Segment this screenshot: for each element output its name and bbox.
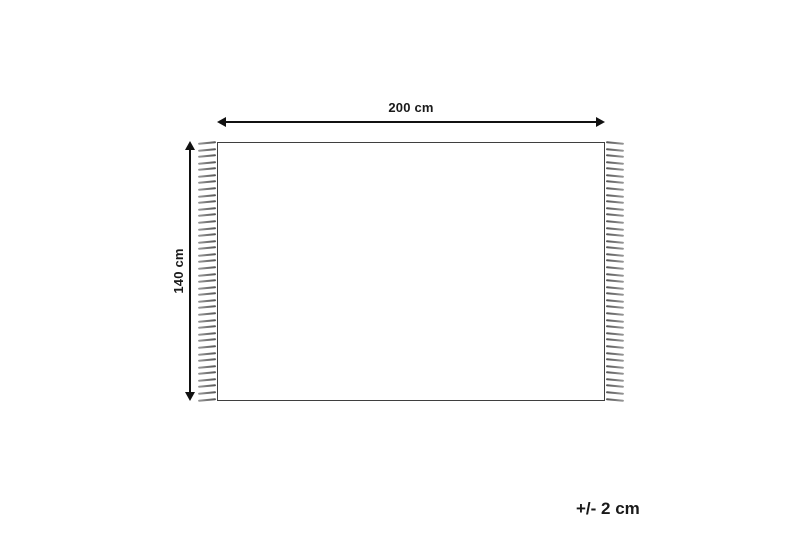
fringe-stroke (198, 200, 216, 204)
fringe-stroke (198, 233, 216, 237)
fringe-stroke (198, 319, 216, 323)
fringe-stroke (198, 181, 216, 185)
fringe-stroke (198, 260, 216, 264)
fringe-stroke (606, 293, 624, 297)
fringe-stroke (198, 174, 216, 178)
fringe-stroke (198, 371, 216, 375)
fringe-stroke (606, 339, 624, 343)
fringe-stroke (606, 154, 624, 158)
fringe-stroke (198, 385, 216, 389)
rug-fringe-right-icon (606, 142, 624, 401)
fringe-stroke (198, 148, 216, 152)
fringe-stroke (198, 227, 216, 231)
fringe-stroke (606, 174, 624, 178)
fringe-stroke (198, 358, 216, 362)
fringe-stroke (606, 168, 624, 172)
fringe-stroke (198, 312, 216, 316)
fringe-stroke (606, 332, 624, 336)
fringe-stroke (606, 398, 624, 402)
fringe-stroke (198, 286, 216, 290)
fringe-stroke (198, 214, 216, 218)
diagram-canvas: 200 cm 140 cm +/- 2 cm (0, 0, 800, 533)
fringe-stroke (198, 391, 216, 395)
fringe-stroke (606, 358, 624, 362)
arrow-shaft (222, 121, 600, 123)
fringe-stroke (198, 378, 216, 382)
arrow-head-bottom-icon (185, 392, 195, 401)
height-dimension-arrow-icon (183, 141, 197, 401)
fringe-stroke (606, 200, 624, 204)
fringe-stroke (606, 194, 624, 198)
fringe-stroke (606, 345, 624, 349)
fringe-stroke (198, 154, 216, 158)
fringe-stroke (198, 279, 216, 283)
fringe-stroke (198, 194, 216, 198)
rug-fringe-left-icon (198, 142, 216, 401)
fringe-stroke (198, 273, 216, 277)
fringe-stroke (606, 161, 624, 165)
fringe-stroke (606, 141, 624, 145)
fringe-stroke (198, 299, 216, 303)
fringe-stroke (606, 240, 624, 244)
fringe-stroke (606, 260, 624, 264)
fringe-stroke (198, 266, 216, 270)
fringe-stroke (606, 365, 624, 369)
tolerance-label: +/- 2 cm (576, 499, 640, 519)
fringe-stroke (606, 181, 624, 185)
fringe-stroke (198, 240, 216, 244)
fringe-stroke (198, 352, 216, 356)
width-dimension-arrow-icon (217, 115, 605, 129)
fringe-stroke (606, 378, 624, 382)
fringe-stroke (198, 253, 216, 257)
fringe-stroke (198, 293, 216, 297)
arrow-head-right-icon (596, 117, 605, 127)
fringe-stroke (198, 332, 216, 336)
fringe-stroke (606, 306, 624, 310)
fringe-stroke (606, 385, 624, 389)
fringe-stroke (606, 207, 624, 211)
fringe-stroke (606, 279, 624, 283)
fringe-stroke (606, 253, 624, 257)
rug-outline (217, 142, 605, 401)
fringe-stroke (606, 220, 624, 224)
fringe-stroke (606, 214, 624, 218)
fringe-stroke (198, 220, 216, 224)
fringe-stroke (606, 391, 624, 395)
fringe-stroke (606, 273, 624, 277)
fringe-stroke (198, 306, 216, 310)
fringe-stroke (198, 141, 216, 145)
fringe-stroke (606, 246, 624, 250)
fringe-stroke (198, 339, 216, 343)
fringe-stroke (606, 187, 624, 191)
fringe-stroke (198, 207, 216, 211)
fringe-stroke (198, 187, 216, 191)
arrow-shaft (189, 146, 191, 396)
fringe-stroke (606, 148, 624, 152)
fringe-stroke (606, 371, 624, 375)
fringe-stroke (606, 266, 624, 270)
fringe-stroke (606, 227, 624, 231)
fringe-stroke (606, 319, 624, 323)
fringe-stroke (198, 365, 216, 369)
fringe-stroke (606, 325, 624, 329)
fringe-stroke (606, 312, 624, 316)
fringe-stroke (606, 286, 624, 290)
fringe-stroke (198, 345, 216, 349)
fringe-stroke (606, 299, 624, 303)
fringe-stroke (198, 325, 216, 329)
fringe-stroke (198, 246, 216, 250)
fringe-stroke (198, 398, 216, 402)
fringe-stroke (606, 233, 624, 237)
fringe-stroke (198, 161, 216, 165)
fringe-stroke (606, 352, 624, 356)
width-dimension-label: 200 cm (217, 100, 605, 115)
fringe-stroke (198, 168, 216, 172)
